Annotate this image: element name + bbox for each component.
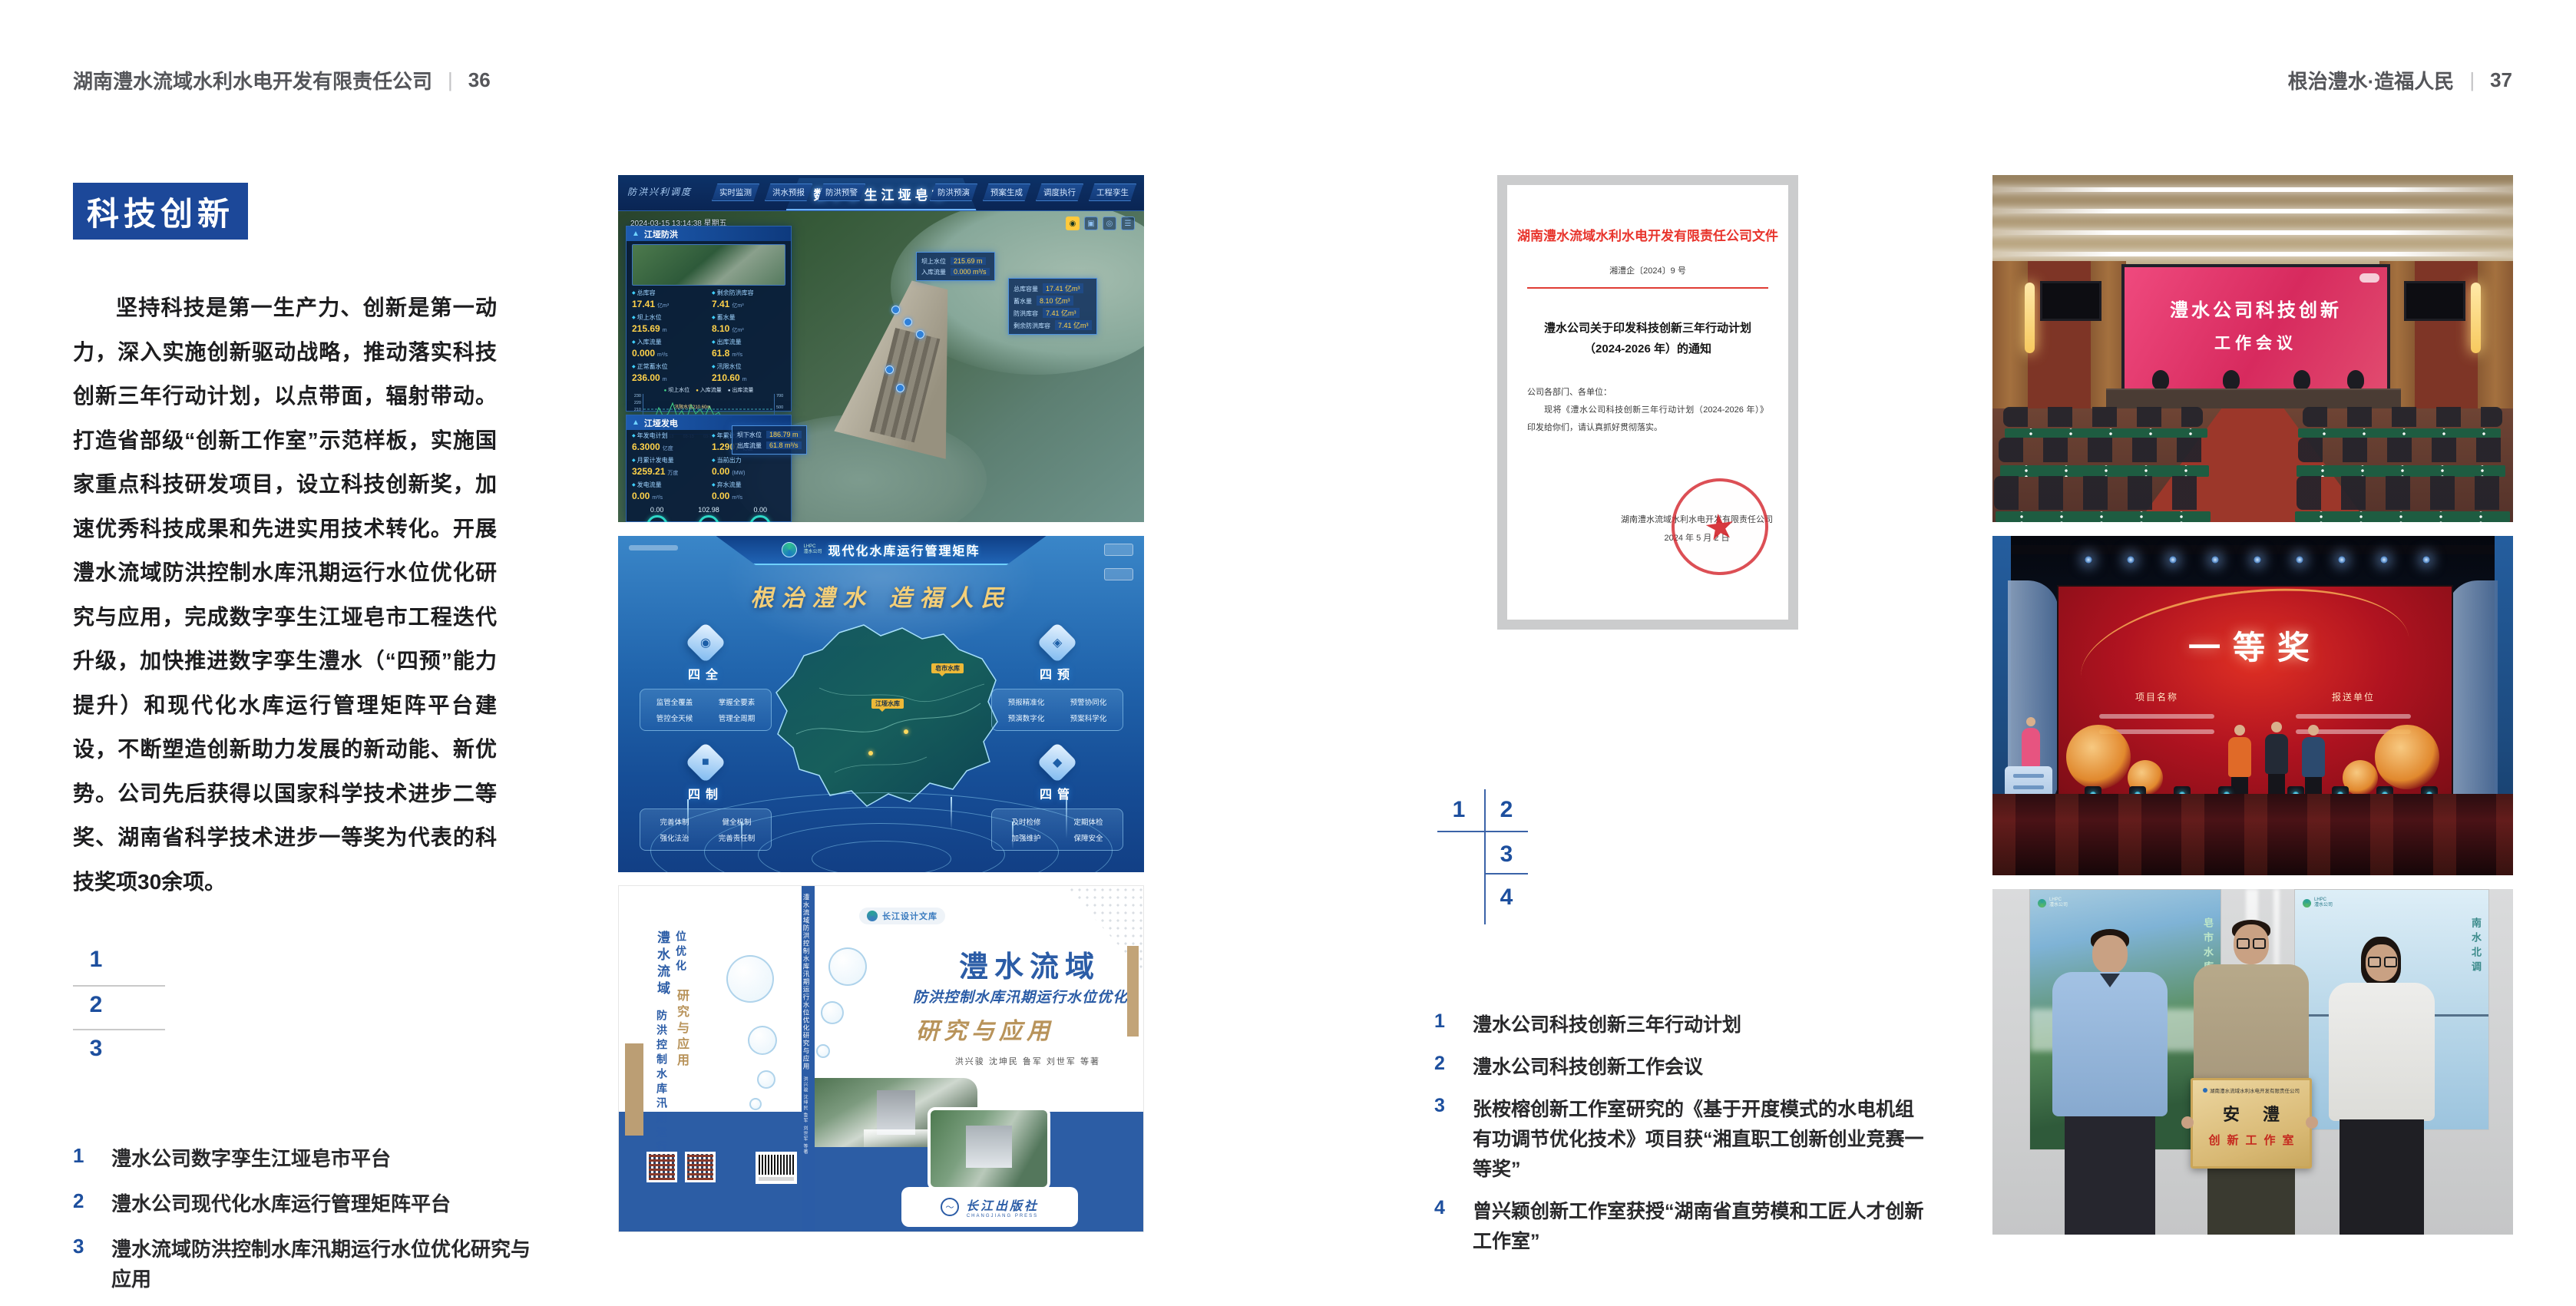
wall-lamp-icon [2471,283,2481,353]
tooltip-label: 坝下水位 [737,431,762,439]
stat-label: 蓄水量 [712,313,785,322]
presenter-suit [2263,722,2290,797]
gauge-ring-icon [749,515,771,522]
company-logo-text: LHPC 澧水公司 [803,544,822,555]
hud-tab: 工程孪生 [1089,184,1136,201]
stage-floor [1992,794,2513,875]
stat-cell: 汛限水位 210.60m [712,361,785,385]
stat-unit: (MW) [732,471,745,476]
screen-logo-icon [2359,273,2379,283]
reservoir-marker: 江垭水库 [871,699,904,709]
publisher-block: 〜 长江出版社 CHANGJIANG PRESS [901,1187,1078,1227]
hud-tab: 防洪预演 [930,184,977,201]
section-title-badge: 科技创新 [73,183,248,240]
stat-cell: 坝上水位 215.69m [632,312,706,336]
page-number-right: 37 [2490,68,2512,92]
gate-marker-icon [916,330,924,339]
hud-tab: 调度执行 [1036,184,1083,201]
tooltip-label: 剩余防洪库容 [1014,322,1050,330]
company-name: 湖南澧水流域水利水电开发有限责任公司 [73,66,432,94]
motto: 根治澧水·造福人民 [2288,66,2455,94]
tooltip-row: 蓄水量8.10 亿m³ [1014,294,1092,306]
right-page-header: 根治澧水·造福人民 | 37 [2288,66,2512,94]
dam-thumbnail [632,244,785,286]
close-button [1104,544,1133,556]
stat-unit: 亿m³ [657,303,669,309]
publisher-logo-icon: 〜 [941,1198,959,1216]
innovation-workshop-plaque: 湖南澧水流域水利水电开发有限责任公司 安澧 创新工作室 [2191,1078,2312,1169]
logo-line: LHPC [2314,898,2333,903]
tooltip-row: 坝上水位215.69 m [921,256,990,266]
logo-line: LHPC [803,544,822,550]
gate-marker-icon [891,306,900,314]
figure-key-2: 2 [73,992,119,1018]
left-page-header: 湖南澧水流域水利水电开发有限责任公司 | 36 [73,66,491,94]
slogan-calligraphy: 根治澧水 造福人民 [618,579,1144,613]
target-icon: ◎ [1103,217,1116,230]
stat-value: 215.69 [632,323,660,334]
legend-item: 入库流量 [696,386,722,394]
gate-marker-icon [896,384,904,392]
station-dot-icon [904,729,908,734]
page-number-left: 36 [468,68,491,92]
stat-cell: 当前出力 0.00(MW) [712,455,785,479]
publisher-name: 长江出版社 [966,1195,1039,1214]
group-siyu: ◈ 四预 预报精准化预警协同化预演数字化预案科学化 [991,628,1123,731]
figure-plaque-photo: LHPC 澧水公司 皂市水库 LHPC 澧水公司 南水北调 [1992,889,2513,1235]
figure-award-photo: 一等奖 项目名称 报送单位 [1992,536,2513,875]
stat-unit: m [742,377,747,382]
qr-code [685,1152,716,1182]
stat-value: 3259.21 [632,466,665,477]
back-tan-block [625,1043,643,1136]
tooltip-downstream: 坝下水位186.79 m出库流量61.8 m³/s [732,425,807,455]
caption-item: 3 张桉榕创新工作室研究的《基于开度模式的水电机组有功调节优化技术》项目获“湘直… [1434,1095,1926,1185]
plaque-name: 安澧 [2193,1101,2310,1126]
group-panel: 完善体制健全机制强化法治完善责任制 [640,808,772,851]
stat-unit: m [663,377,667,382]
group-item: 完善体制 [645,816,704,827]
bubble-decoration [726,955,774,1003]
tooltip-row: 总库容量17.41 亿m³ [1014,282,1092,294]
unit-gauge: 0.00 3#机组 [749,506,771,522]
group-siquan: ◉ 四全 监管全覆盖掌握全要素管控全天候管理全周期 [640,628,772,731]
bubble-decoration [816,1044,830,1058]
caption-item: 3 澧水流域防洪控制水库汛期运行水位优化研究与应用 [73,1235,549,1294]
tooltip-label: 蓄水量 [1014,297,1032,306]
stat-label: 坝上水位 [632,313,706,322]
document-letterhead: 湖南澧水流域水利水电开发有限责任公司文件 [1507,225,1788,244]
cover-title-tail: 研究与应用 [916,1012,1054,1046]
stat-label: 年发电计划 [632,431,706,440]
subject-line: 澧水公司关于印发科技创新三年行动计划 [1507,318,1788,339]
caption-item: 1 澧水公司科技创新三年行动计划 [1434,1010,1926,1040]
panelist-silhouette [2347,370,2364,390]
glasses-icon [2237,940,2266,947]
person-right [2324,937,2439,1235]
group-item: 管理全周期 [707,713,766,723]
stat-label: 当前出力 [712,456,785,465]
screen-title-line1: 澧水公司科技创新 [2125,295,2387,322]
stat-cell: 蓄水量 8.10亿m³ [712,312,785,336]
group-panel: 监管全覆盖掌握全要素管控全天候管理全周期 [640,689,772,731]
wall-tv [2404,281,2465,321]
logo-icon [2038,899,2046,908]
cover-title-sub: 防洪控制水库汛期运行水位优化 [913,986,1128,1007]
back-title-main: 澧水流域 [655,931,670,998]
stat-label: 弃水流量 [712,481,785,489]
group-title: 四制 [640,784,772,802]
logo-line: 澧水公司 [2314,903,2333,908]
stat-value: 61.8 [712,348,729,359]
flood-limit-annotation: 汛限水位210.60m [674,403,710,410]
golden-orb-decoration [2375,725,2439,789]
group-panel: 及时检修定期体检加强维护保障安全 [991,808,1123,851]
figure-meeting-photo: 澧水公司科技创新 工作会议 [1992,175,2513,522]
hud-corner-label: 防洪兴利调度 [627,185,692,198]
back-title-tail: 研究与应用 [675,989,688,1070]
brochure-spread: 湖南澧水流域水利水电开发有限责任公司 | 36 根治澧水·造福人民 | 37 科… [0,0,2576,1306]
stat-value: 0.000 [632,348,655,359]
document-body: 公司各部门、各单位： 现将《澧水公司科技创新三年行动计划（2024-2026 年… [1527,384,1768,437]
gauge-ring-icon [698,515,719,522]
stat-cell: 剩余防洪库容 7.41亿m³ [712,287,785,312]
group-item: 预报精准化 [997,696,1056,707]
panelist-silhouette [2223,370,2240,390]
group-item: 强化法治 [645,832,704,843]
stat-value: 8.10 [712,323,729,334]
flood-stats: 总库容 17.41亿m³ 剩余防洪库容 7.41亿m³ 坝上水位 215.69m [627,287,791,385]
stat-value: 210.60 [712,372,740,383]
tooltip-label: 坝上水位 [921,257,946,266]
tooltip-value: 17.41 亿m³ [1043,283,1083,293]
panel-title: 江垭防洪 [644,228,678,240]
glasses-icon [2368,958,2397,966]
figure-key-divider [73,1029,165,1030]
tooltip-row: 坝下水位186.79 m [737,429,802,440]
caption-number: 3 [1434,1095,1456,1185]
spine-authors: 洪兴骏 沈坤民 鲁军 刘世军 等著 [802,1076,809,1155]
figure-digital-twin-platform: 防洪兴利调度 数字孪生江垭皂市 实时监测洪水预报防洪预警 防洪预演预案生成调度执… [618,175,1144,522]
gate-marker-icon [904,318,912,326]
tooltip-upstream: 坝上水位215.69 m入库流量0.000 m³/s [916,252,995,281]
group-item: 健全机制 [707,816,766,827]
series-logo-icon [867,911,878,921]
tick-label: 210 [634,408,641,412]
group-title: 四预 [991,664,1123,683]
stat-unit: m³/s [652,495,663,501]
tooltip-value: 215.69 m [951,257,986,265]
stat-label: 发电流量 [632,481,706,489]
header-separator: | [2469,68,2475,92]
series-label: 长江设计文库 [882,910,937,922]
bubble-decoration [748,1026,777,1055]
front-tan-bar [1127,946,1139,1037]
user-icon: ◉ [1066,217,1080,230]
reservoir-marker: 皂市水库 [931,663,964,673]
group-item: 监管全覆盖 [645,696,704,707]
cover-title-main: 澧水流域 [959,943,1100,985]
stat-value: 7.41 [712,299,729,309]
panelist-silhouette [2293,370,2310,390]
stat-value: 0.00 [712,466,729,477]
tick-label: 700 [776,394,785,398]
stat-unit: 亿m³ [732,303,743,309]
logo-line: LHPC [2049,898,2068,903]
unit-gauges: 0.00 1#机组 102.98 2#机组 0.00 3#机组 [627,504,791,522]
stat-label: 剩余防洪库容 [712,289,785,297]
poster-logo: LHPC 澧水公司 [2038,898,2068,908]
group-item: 保障安全 [1059,832,1118,843]
group-item: 预案科学化 [1059,713,1118,723]
group-item: 预警协同化 [1059,696,1118,707]
poster-logo: LHPC 澧水公司 [2303,898,2333,908]
stat-label: 月累计发电量 [632,456,706,465]
figure-key-2: 2 [1486,797,1526,823]
stage-side-panel [2447,580,2498,811]
group-item: 定期体检 [1059,816,1118,827]
institution-icon: ■ [685,742,726,783]
publisher-name-en: CHANGJIANG PRESS [967,1214,1038,1218]
hud-tab: 实时监测 [712,184,759,201]
tooltip-row: 入库流量0.000 m³/s [921,266,990,277]
hud-tab: 洪水预报 [765,184,812,201]
stat-unit: m³/s [732,495,742,501]
group-item: 管控全天候 [645,713,704,723]
stat-cell: 入库流量 0.000m³/s [632,336,706,361]
caption-number: 2 [73,1189,94,1219]
tooltip-row: 剩余防洪库容7.41 亿m³ [1014,319,1092,331]
stat-value: 236.00 [632,372,660,383]
tooltip-label: 防洪库容 [1014,309,1038,318]
stat-cell: 弃水流量 0.00m³/s [712,479,785,504]
stat-value: 0.00 [712,491,729,501]
book-spine: 澧水流域防洪控制水库汛期运行水位优化研究与应用 洪兴骏 沈坤民 鲁军 刘世军 等… [802,886,815,1232]
caption-item: 4 曾兴颖创新工作室获授“湖南省直劳模和工匠人才创新工作室” [1434,1197,1926,1257]
caption-text: 澧水公司数字孪生江垭皂市平台 [111,1144,391,1174]
stat-cell: 总库容 17.41亿m³ [632,287,706,312]
stat-unit: 亿度 [663,446,673,451]
tooltip-value: 8.10 亿m³ [1037,296,1073,306]
group-panel: 预报精准化预警协同化预演数字化预案科学化 [991,689,1123,731]
figure-key-divider [1484,873,1528,875]
station-dot-icon [868,751,873,755]
stat-value: 6.3000 [632,441,660,452]
caption-item: 1 澧水公司数字孪生江垭皂市平台 [73,1144,549,1174]
layers-icon: ▣ [1084,217,1098,230]
wall-tv [2040,281,2101,321]
tooltip-value: 186.79 m [766,431,802,438]
datetime-placeholder [629,545,678,551]
group-item: 预演数字化 [997,713,1056,723]
gate-marker-icon [885,365,894,374]
tooltip-row: 出库流量61.8 m³/s [737,440,802,451]
hud-toolbar-icons: ◉ ▣ ◎ ☰ [1066,217,1135,230]
subject-line: （2024-2026 年）的通知 [1507,339,1788,359]
hud-tab: 防洪预警 [818,184,865,201]
group-item: 掌握全要素 [707,696,766,707]
logo-line: 澧水公司 [803,550,822,555]
logo-icon [2303,899,2311,908]
stat-label: 总库容 [632,289,706,297]
stat-cell: 正常蓄水位 236.00m [632,361,706,385]
stat-value: 17.41 [632,299,655,309]
stage-truss [1992,545,2513,554]
series-tag: 长江设计文库 [859,908,945,924]
caption-text: 澧水公司现代化水库运行管理矩阵平台 [111,1189,451,1219]
figure-key-3: 3 [1486,841,1526,868]
salutation: 公司各部门、各单位： [1527,384,1768,402]
wood-pillar [1992,261,2028,408]
screen-title-line2: 工作会议 [2125,331,2387,354]
caption-number: 3 [73,1235,94,1294]
group-title: 四管 [991,784,1123,802]
poster-caption: 南水北调 [2468,918,2482,976]
stat-unit: m³/s [732,352,742,358]
matrix-title: 现代化水库运行管理矩阵 [828,541,980,559]
document-subject: 澧水公司关于印发科技创新三年行动计划 （2024-2026 年）的通知 [1507,318,1788,359]
stat-unit: m³/s [657,352,668,358]
stat-label: 出库流量 [712,338,785,346]
hud-tabs-left: 实时监测洪水预报防洪预警 [712,184,865,201]
tick-label: 500 [776,405,785,410]
figure-key-4: 4 [1486,884,1526,911]
caption-text: 曾兴颖创新工作室获授“湖南省直劳模和工匠人才创新工作室” [1473,1197,1926,1257]
flood-control-panel: ▲ 江垭防洪 总库容 17.41亿m³ 剩余防洪库容 7.41亿m³ [626,226,792,412]
panel-header: ▲ 江垭防洪 [627,226,791,241]
menu-icon: ☰ [1121,217,1135,230]
figure-key-1: 1 [73,947,119,973]
tick-label: 230 [634,394,641,398]
chart-legend: 坝上水位入库流量出库流量 [627,386,791,394]
header-separator: | [448,68,453,92]
forecast-icon: ◈ [1037,622,1078,663]
logo-line: 澧水公司 [2049,903,2068,908]
unit-gauge: 102.98 2#机组 [698,506,719,522]
stat-unit: 亿m³ [732,328,743,333]
stat-value: 0.00 [632,491,650,501]
figure-key-1: 1 [1439,797,1479,823]
hand [2181,1116,2194,1129]
wood-pillar [2478,261,2513,408]
stat-cell: 月累计发电量 3259.21万度 [632,455,706,479]
stat-cell: 发电流量 0.00m³/s [632,479,706,504]
stat-cell: 出库流量 61.8m³/s [712,336,785,361]
bubble-decoration [828,947,867,986]
hud-top-bar: 防洪兴利调度 数字孪生江垭皂市 实时监测洪水预报防洪预警 防洪预演预案生成调度执… [618,175,1144,211]
gauge-ring-icon [646,515,668,522]
right-caption-list: 1 澧水公司科技创新三年行动计划 2 澧水公司科技创新工作会议 3 张桉榕创新工… [1434,1010,1926,1269]
caption-item: 2 澧水公司科技创新工作会议 [1434,1053,1926,1083]
wall-lamp-icon [2025,283,2035,353]
legend-item: 坝上水位 [664,386,690,394]
tooltip-label: 出库流量 [737,441,762,450]
group-item: 完善责任制 [707,832,766,843]
tick-label: 220 [634,401,641,405]
tooltip-value: 7.41 亿m³ [1043,308,1080,318]
caption-text: 澧水公司科技创新工作会议 [1473,1053,1703,1083]
caption-item: 2 澧水公司现代化水库运行管理矩阵平台 [73,1189,549,1219]
caption-number: 1 [73,1144,94,1174]
tooltip-capacity: 总库容量17.41 亿m³蓄水量8.10 亿m³防洪库容7.41 亿m³剩余防洪… [1008,278,1097,335]
caption-text: 澧水流域防洪控制水库汛期运行水位优化研究与应用 [111,1235,549,1294]
host-silhouette [2022,717,2040,768]
group-sizhi: ■ 四制 完善体制健全机制强化法治完善责任制 [640,748,772,851]
panelist-silhouette [2152,370,2169,390]
gauge-value: 0.00 [749,506,771,514]
figure-key-3: 3 [73,1036,119,1062]
bubble-decoration [757,1070,775,1089]
official-seal-icon: ★ [1665,472,1774,581]
stat-label: 汛限水位 [712,362,785,371]
stat-cell: 年发电计划 6.3000亿度 [632,430,706,455]
bubble-decoration [821,1001,844,1024]
group-title: 四全 [640,664,772,683]
plaque-subtitle: 创新工作室 [2193,1132,2310,1148]
group-item: 及时检修 [997,816,1056,827]
figure-book-cover: 澧水流域 防洪控制水库汛期运行水位优化 研究与应用 澧水流域防洪控制水库汛期运行… [618,885,1144,1232]
caption-number: 4 [1434,1197,1456,1257]
tooltip-label: 总库容量 [1014,285,1038,293]
golden-orb-decoration [2066,725,2131,789]
group-siguan: ◆ 四管 及时检修定期体检加强维护保障安全 [991,748,1123,851]
panel-title: 江垭发电 [644,417,678,429]
figure-matrix-platform: LHPC 澧水公司 现代化水库运行管理矩阵 根治澧水 造福人民 皂市水库 江垭水… [618,536,1144,872]
caption-text: 澧水公司科技创新三年行动计划 [1473,1010,1741,1040]
company-logo-icon [782,542,797,557]
cover-small-dam-photo [928,1107,1050,1190]
pyramid-icon: ▲ [632,230,640,238]
body-paragraph: 坚持科技是第一生产力、创新是第一动力，深入实施创新驱动战略，推动落实科技创新三年… [73,286,497,904]
left-caption-list: 1 澧水公司数字孪生江垭皂市平台 2 澧水公司现代化水库运行管理矩阵平台 3 澧… [73,1144,549,1306]
tooltip-value: 7.41 亿m³ [1055,320,1092,330]
shield-icon: ◆ [1037,742,1078,783]
matrix-header: LHPC 澧水公司 现代化水库运行管理矩阵 [716,536,1047,565]
barcode [756,1152,797,1184]
red-rule [1527,287,1769,289]
body-text: 现将《澧水公司科技创新三年行动计划（2024-2026 年）》印发给你们，请认真… [1527,402,1768,437]
cover-authors: 洪兴骏 沈坤民 鲁军 刘世军 等著 [955,1055,1100,1067]
tooltip-row: 防洪库容7.41 亿m³ [1014,306,1092,319]
bubble-decoration [749,1098,762,1110]
hud-tab: 预案生成 [983,184,1030,201]
plaque-org-line: 湖南澧水流域水利水电开发有限责任公司 [2193,1086,2310,1094]
unit-gauge: 0.00 1#机组 [646,506,668,522]
legend-item: 出库流量 [728,386,754,394]
caption-number: 1 [1434,1010,1456,1040]
watershed-map [766,619,1007,815]
person-center [2189,920,2312,1235]
stat-unit: 万度 [667,471,678,476]
person-left [2048,929,2171,1235]
figure-key-divider [1484,789,1486,924]
figure-key-divider [1437,831,1528,832]
monitor-icon: ◉ [685,622,726,663]
stat-label: 正常蓄水位 [632,362,706,371]
spine-title: 澧水流域防洪控制水库汛期运行水位优化研究与应用 [802,894,811,1070]
document-number: 湘澧企〔2024〕9 号 [1507,264,1788,276]
stat-unit: m [663,328,667,333]
hand [2306,1116,2318,1129]
figure-official-document: 湖南澧水流域水利水电开发有限责任公司文件 湘澧企〔2024〕9 号 澧水公司关于… [1497,175,1798,630]
gauge-value: 0.00 [646,506,668,514]
hud-tabs-right: 防洪预演预案生成调度执行工程孪生 [930,184,1136,201]
figure-key-divider [73,985,165,987]
back-cover-title: 澧水流域 防洪控制水库汛期运行水位优化 研究与应用 [653,931,690,1184]
tooltip-value: 0.000 m³/s [951,268,990,276]
gauge-value: 102.98 [698,506,719,514]
caption-text: 张桉榕创新工作室研究的《基于开度模式的水电机组有功调节优化技术》项目获“湘直职工… [1473,1095,1926,1185]
